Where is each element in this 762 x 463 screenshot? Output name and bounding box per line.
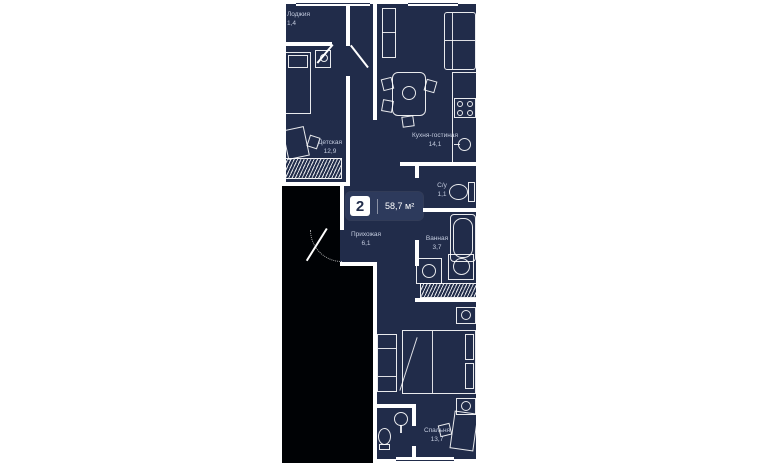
chair-icon bbox=[381, 99, 394, 113]
wall-segment bbox=[346, 0, 350, 46]
room-label-wc: С/у 1,1 bbox=[430, 181, 454, 199]
pedestal-sink-icon bbox=[394, 412, 408, 426]
room-label-kitchen-living: Кухня-гостиная 14,1 bbox=[402, 131, 468, 149]
room-label-hallway: Прихожая 6,1 bbox=[344, 230, 388, 248]
toilet-tank bbox=[468, 182, 475, 202]
bathtub-inner bbox=[453, 218, 473, 258]
wall-segment bbox=[346, 76, 350, 186]
room-name: Прихожая bbox=[344, 230, 388, 239]
room-area: 13,7 bbox=[408, 435, 466, 444]
wall-segment bbox=[373, 0, 377, 120]
room-area: 1,4 bbox=[287, 19, 329, 28]
wardrobe-icon bbox=[377, 334, 397, 392]
wall-segment bbox=[476, 0, 480, 463]
cabinet-divider bbox=[382, 32, 396, 33]
wardrobe-icon bbox=[284, 158, 342, 179]
room-name: Спальня bbox=[408, 426, 466, 435]
screen: Лоджия 1,4 Детская 12,9 Кухня-гостиная 1… bbox=[0, 0, 762, 463]
wall-segment bbox=[373, 404, 416, 408]
kitchen-cabinet-icon bbox=[382, 8, 396, 58]
table-center bbox=[402, 86, 416, 100]
wall-segment bbox=[415, 208, 480, 212]
burner bbox=[457, 110, 463, 116]
wardrobe-door-line bbox=[378, 348, 396, 349]
burner bbox=[467, 110, 473, 116]
washer-drum bbox=[453, 258, 470, 275]
pillow-icon bbox=[288, 55, 308, 68]
pillow-icon bbox=[465, 334, 474, 360]
sink-basin bbox=[422, 264, 436, 278]
wall-segment bbox=[340, 262, 377, 266]
room-area: 3,7 bbox=[420, 243, 454, 252]
wall-segment bbox=[415, 166, 419, 178]
blanket-line bbox=[432, 331, 433, 393]
sofa-cushion-line bbox=[452, 13, 453, 69]
kitchen-counter-icon bbox=[452, 72, 478, 166]
wall-segment bbox=[412, 404, 416, 426]
room-name: Ванная bbox=[420, 234, 454, 243]
chair-icon bbox=[401, 115, 414, 128]
sofa-icon bbox=[444, 12, 476, 70]
toilet-tank bbox=[379, 444, 390, 450]
room-name: Детская bbox=[308, 138, 352, 147]
floor-plan: Лоджия 1,4 Детская 12,9 Кухня-гостиная 1… bbox=[282, 0, 480, 463]
lamp-icon bbox=[461, 401, 471, 411]
room-area: 12,9 bbox=[308, 147, 352, 156]
sofa-cushion-line bbox=[445, 40, 475, 41]
room-name: С/у bbox=[430, 181, 454, 190]
sink-pedestal bbox=[400, 425, 402, 433]
room-area: 14,1 bbox=[402, 140, 468, 149]
room-label-bedroom: Спальня 13,7 bbox=[408, 426, 466, 444]
window-icon bbox=[408, 0, 458, 6]
room-label-children: Детская 12,9 bbox=[308, 138, 352, 156]
room-label-loggia: Лоджия 1,4 bbox=[287, 10, 329, 28]
burner bbox=[457, 101, 463, 107]
room-label-bathroom: Ванная 3,7 bbox=[420, 234, 454, 252]
toilet-icon bbox=[378, 428, 391, 445]
apartment-badge: 2 58,7 м² bbox=[346, 192, 423, 220]
room-area: 1,1 bbox=[430, 190, 454, 199]
burner bbox=[467, 101, 473, 107]
lamp-icon bbox=[320, 54, 328, 62]
room-area: 6,1 bbox=[344, 239, 388, 248]
wardrobe-icon bbox=[420, 283, 478, 298]
wardrobe-door-line bbox=[378, 376, 396, 377]
room-name: Лоджия bbox=[287, 10, 329, 19]
entrance-door-swing-arc bbox=[310, 230, 342, 262]
wall-segment bbox=[282, 182, 348, 186]
room-name: Кухня-гостиная bbox=[402, 131, 468, 140]
total-area-value: 58,7 м² bbox=[385, 201, 414, 211]
wall-segment bbox=[415, 298, 480, 302]
wall-segment bbox=[282, 42, 332, 46]
wall-segment bbox=[340, 186, 344, 230]
pillow-icon bbox=[465, 363, 474, 389]
rooms-count-badge: 2 bbox=[350, 196, 370, 216]
lamp-icon bbox=[461, 310, 471, 320]
window-icon bbox=[296, 0, 370, 6]
badge-divider bbox=[377, 199, 378, 214]
window-icon bbox=[396, 457, 454, 463]
